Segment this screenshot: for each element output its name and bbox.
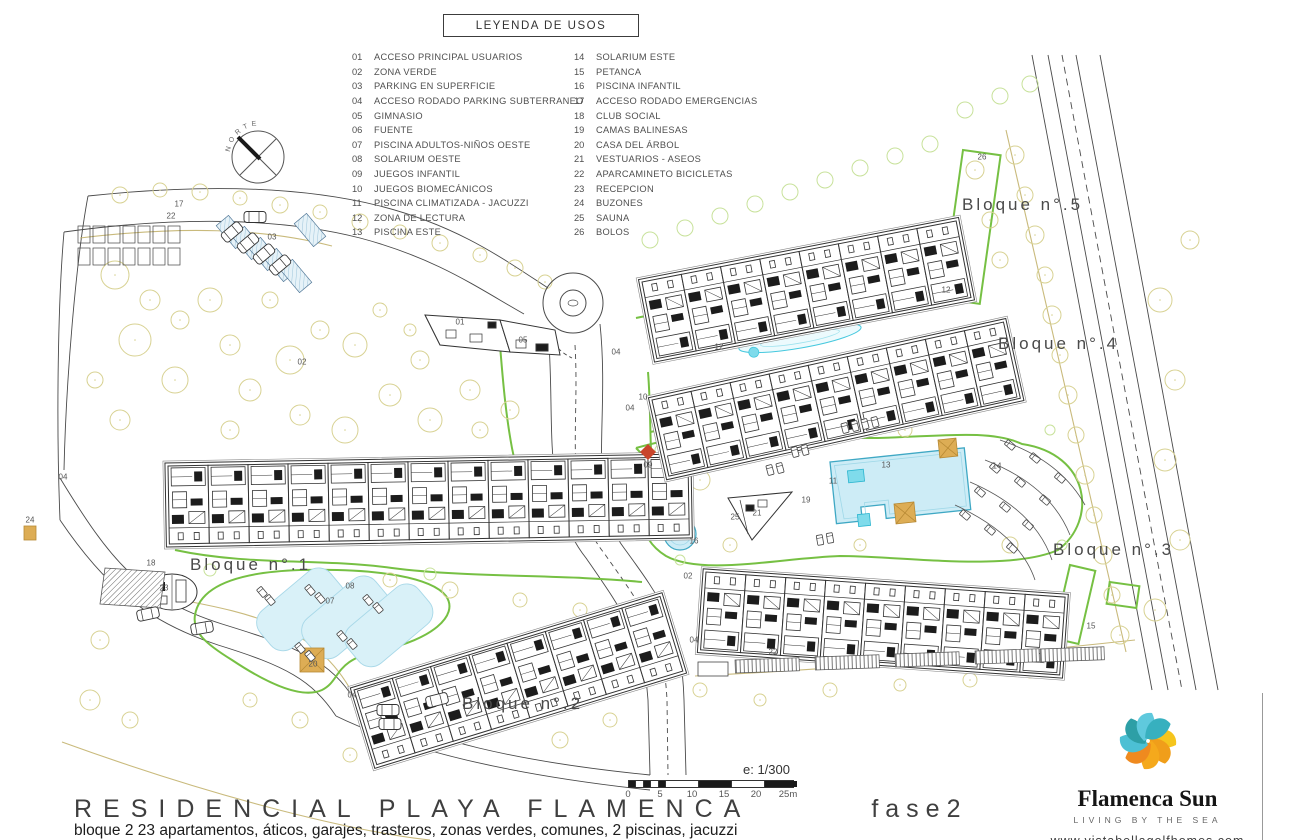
legend-item: 17 ACCESO RODADO EMERGENCIAS	[574, 94, 772, 109]
plan-marker-20: 20	[309, 660, 318, 669]
legend-item-number: 11	[352, 198, 374, 208]
label-block-4: Bloque n°.4	[998, 334, 1119, 354]
legend-item-label: PARKING EN SUPERFICIE	[374, 81, 495, 91]
legend-item: 09 JUEGOS INFANTIL	[352, 167, 550, 182]
legend-item-label: ZONA VERDE	[374, 67, 437, 77]
plan-marker-17: 17	[175, 200, 184, 209]
legend-item-label: SAUNA	[596, 213, 630, 223]
plan-marker-15: 15	[1087, 622, 1096, 631]
legend-item: 08 SOLARIUM OESTE	[352, 152, 550, 167]
legend-item-number: 17	[574, 96, 596, 106]
brand-logo: Flamenca Sun LIVING BY THE SEA www.vista…	[1040, 705, 1255, 840]
legend-item-number: 21	[574, 154, 596, 164]
plan-marker-26: 26	[978, 153, 987, 162]
brand-tagline: LIVING BY THE SEA	[1040, 815, 1255, 825]
legend-item-number: 08	[352, 154, 374, 164]
mailboxes	[24, 526, 36, 540]
legend-item-number: 13	[352, 227, 374, 237]
plan-marker-08: 08	[346, 582, 355, 591]
legend-item: 05 GIMNASIO	[352, 108, 550, 123]
legend-item-label: FUENTE	[374, 125, 413, 135]
plan-marker-12: 12	[942, 286, 951, 295]
phase-title: fase2	[871, 795, 967, 824]
legend-item-number: 05	[352, 111, 374, 121]
legend-item-label: VESTUARIOS - ASEOS	[596, 154, 701, 164]
plan-marker-23: 23	[160, 584, 169, 593]
legend-item: 10 JUEGOS BIOMECÁNICOS	[352, 181, 550, 196]
plan-marker-04: 04	[59, 473, 68, 482]
plan-marker-10: 10	[639, 393, 648, 402]
legend-item: 14 SOLARIUM ESTE	[574, 50, 772, 65]
legend-item-label: PETANCA	[596, 67, 641, 77]
label-block-2: Bloque n°.2	[462, 694, 583, 714]
legend-item: 22 APARCAMINETO BICICLETAS	[574, 167, 772, 182]
legend-item-number: 16	[574, 81, 596, 91]
plan-marker-25: 25	[731, 513, 740, 522]
legend-item: 12 ZONA DE LECTURA	[352, 211, 550, 226]
legend-item-label: RECEPCION	[596, 184, 654, 194]
plan-marker-04: 04	[626, 404, 635, 413]
legend-item-number: 19	[574, 125, 596, 135]
legend-item-number: 02	[352, 67, 374, 77]
legend-title-box: LEYENDA DE USOS	[443, 14, 639, 37]
garage-ramp	[100, 568, 165, 608]
legend-item-number: 14	[574, 52, 596, 62]
legend-item-number: 22	[574, 169, 596, 179]
plan-marker-18: 18	[147, 559, 156, 568]
legend-item-label: PISCINA ESTE	[374, 227, 441, 237]
legend-item-number: 04	[352, 96, 374, 106]
legend-item-label: CLUB SOCIAL	[596, 111, 661, 121]
plan-marker-19: 19	[802, 496, 811, 505]
plan-marker-03: 03	[268, 233, 277, 242]
legend-item-label: CASA DEL ÁRBOL	[596, 140, 679, 150]
brand-urls: www.vistabellagolfhomes.com www.residenc…	[1040, 833, 1255, 840]
legend-item-label: APARCAMINETO BICICLETAS	[596, 169, 733, 179]
legend-item-number: 12	[352, 213, 374, 223]
label-block-3: Bloque n°.3	[1053, 540, 1174, 560]
scale-ratio: e: 1/300	[628, 762, 794, 777]
label-block-1: Bloque n°.1	[190, 555, 311, 575]
compass-icon: NORTE	[225, 120, 284, 183]
legend-item: 15 PETANCA	[574, 65, 772, 80]
project-subtitle: bloque 2 23 apartamentos, áticos, garaje…	[74, 822, 737, 840]
legend-item: 25 SAUNA	[574, 211, 772, 226]
legend-item-label: PISCINA INFANTIL	[596, 81, 681, 91]
plan-marker-09: 09	[644, 461, 653, 470]
divider-line	[1262, 693, 1263, 840]
plan-marker-04: 04	[348, 691, 357, 700]
legend-item: 04 ACCESO RODADO PARKING SUBTERRANEO	[352, 94, 550, 109]
legend-item: 07 PISCINA ADULTOS-NIÑOS OESTE	[352, 138, 550, 153]
plan-marker-04: 04	[690, 636, 699, 645]
legend-item-number: 20	[574, 140, 596, 150]
legend-item-label: PISCINA CLIMATIZADA - JACUZZI	[374, 198, 529, 208]
legend-item-number: 10	[352, 184, 374, 194]
legend-item-label: JUEGOS INFANTIL	[374, 169, 460, 179]
plan-marker-04: 04	[612, 348, 621, 357]
legend-title: LEYENDA DE USOS	[476, 20, 607, 32]
legend-item-number: 07	[352, 140, 374, 150]
legend-item-number: 25	[574, 213, 596, 223]
legend-item-label: JUEGOS BIOMECÁNICOS	[374, 184, 493, 194]
legend-item-label: ACCESO PRINCIPAL USUARIOS	[374, 52, 523, 62]
legend-item: 18 CLUB SOCIAL	[574, 108, 772, 123]
legend-item-number: 03	[352, 81, 374, 91]
legend-item-label: SOLARIUM OESTE	[374, 154, 461, 164]
legend-item: 19 CAMAS BALINESAS	[574, 123, 772, 138]
legend-item: 26 BOLOS	[574, 225, 772, 240]
legend-item-label: CAMAS BALINESAS	[596, 125, 688, 135]
legend-column-left: 01 ACCESO PRINCIPAL USUARIOS 02 ZONA VER…	[352, 50, 550, 240]
legend-item: 01 ACCESO PRINCIPAL USUARIOS	[352, 50, 550, 65]
legend-item-label: GIMNASIO	[374, 111, 423, 121]
legend-item: 24 BUZONES	[574, 196, 772, 211]
legend-item-label: PISCINA ADULTOS-NIÑOS OESTE	[374, 140, 531, 150]
legend-item-label: BUZONES	[596, 198, 643, 208]
site-plan-page: NORTE LEYENDA DE USOS 01 ACCESO PRINCIPA…	[0, 0, 1290, 840]
plan-marker-07: 07	[326, 597, 335, 606]
project-title: RESIDENCIAL PLAYA FLAMENCA	[74, 795, 751, 824]
label-block-5: Bloque n°.5	[962, 195, 1083, 215]
legend-item: 20 CASA DEL ÁRBOL	[574, 138, 772, 153]
plan-marker-14: 14	[993, 462, 1002, 471]
plan-marker-21: 21	[753, 509, 762, 518]
jacuzzi	[847, 469, 864, 483]
brand-name: Flamenca Sun	[1040, 786, 1255, 812]
plan-marker-05: 05	[519, 336, 528, 345]
plan-marker-02: 02	[684, 572, 693, 581]
legend-item: 02 ZONA VERDE	[352, 65, 550, 80]
block-1-building	[163, 452, 694, 549]
legend-item-number: 24	[574, 198, 596, 208]
legend-item-label: ACCESO RODADO PARKING SUBTERRANEO	[374, 96, 584, 106]
scale-segments	[628, 780, 794, 788]
clubhouse-building	[425, 315, 560, 355]
url-1: www.vistabellagolfhomes.com	[1040, 833, 1255, 840]
legend-item-label: ZONA DE LECTURA	[374, 213, 465, 223]
jacuzzi-2	[857, 513, 870, 526]
legend-item-number: 06	[352, 125, 374, 135]
legend-item-number: 26	[574, 227, 596, 237]
plan-marker-13: 13	[882, 461, 891, 470]
plan-marker-02: 02	[298, 358, 307, 367]
legend-item: 13 PISCINA ESTE	[352, 225, 550, 240]
plan-marker-22: 22	[769, 648, 778, 657]
legend-item: 21 VESTUARIOS - ASEOS	[574, 152, 772, 167]
plan-marker-12: 12	[715, 343, 724, 352]
legend-item: 03 PARKING EN SUPERFICIE	[352, 79, 550, 94]
legend-item: 23 RECEPCION	[574, 181, 772, 196]
plan-marker-22: 22	[167, 212, 176, 221]
legend-column-right: 14 SOLARIUM ESTE 15 PETANCA 16 PISCINA I…	[574, 50, 772, 240]
legend-item-label: SOLARIUM ESTE	[596, 52, 675, 62]
plan-marker-16: 16	[690, 537, 699, 546]
legend-item-label: BOLOS	[596, 227, 630, 237]
legend-item-number: 01	[352, 52, 374, 62]
legend-item: 16 PISCINA INFANTIL	[574, 79, 772, 94]
title-row: RESIDENCIAL PLAYA FLAMENCA fase2	[74, 795, 1074, 824]
pinwheel-icon	[1112, 705, 1184, 777]
legend-item: 11 PISCINA CLIMATIZADA - JACUZZI	[352, 196, 550, 211]
legend-item-number: 18	[574, 111, 596, 121]
plan-marker-11: 11	[829, 477, 837, 486]
legend-item: 06 FUENTE	[352, 123, 550, 138]
plan-marker-01: 01	[456, 318, 465, 327]
legend-item-number: 23	[574, 184, 596, 194]
plan-marker-24: 24	[26, 516, 35, 525]
roundabout	[543, 273, 603, 333]
legend-item-number: 09	[352, 169, 374, 179]
legend: 01 ACCESO PRINCIPAL USUARIOS 02 ZONA VER…	[352, 50, 772, 240]
legend-item-number: 15	[574, 67, 596, 77]
legend-item-label: ACCESO RODADO EMERGENCIAS	[596, 96, 757, 106]
